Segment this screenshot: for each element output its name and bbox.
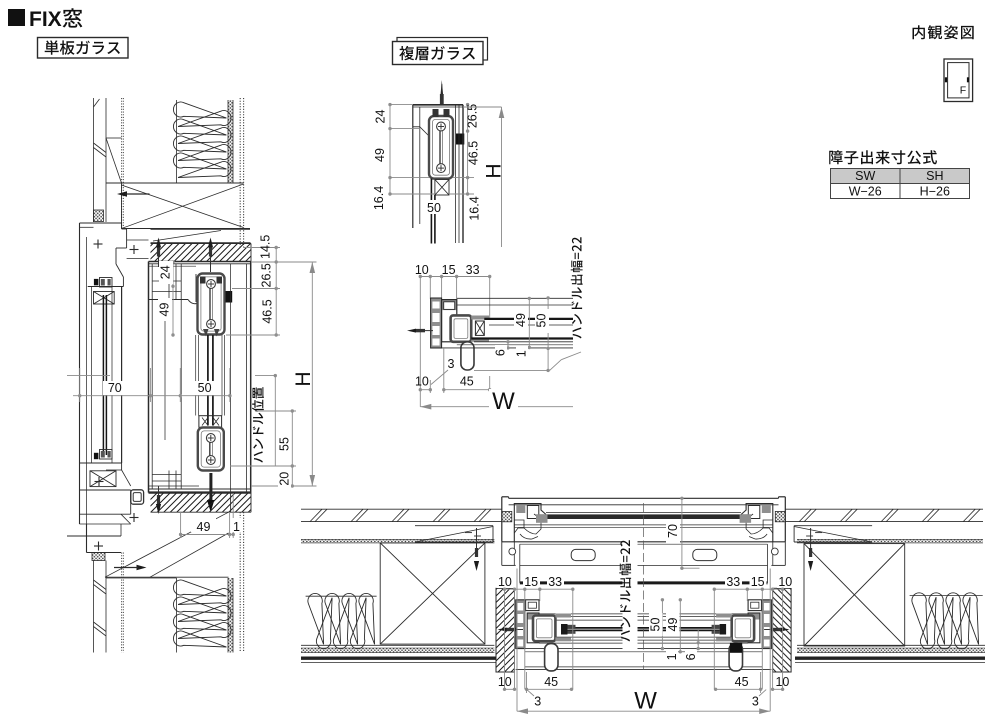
svg-text:49: 49 (197, 520, 211, 534)
svg-text:50: 50 (649, 618, 663, 632)
svg-text:14.5: 14.5 (259, 235, 273, 259)
svg-text:46.5: 46.5 (466, 141, 480, 165)
svg-text:50: 50 (535, 314, 549, 328)
svg-text:10: 10 (498, 575, 512, 589)
svg-text:SH: SH (926, 169, 943, 183)
svg-text:49: 49 (373, 148, 387, 162)
svg-text:6: 6 (494, 349, 508, 356)
svg-text:50: 50 (427, 201, 441, 215)
svg-text:15: 15 (442, 263, 456, 277)
svg-text:F: F (960, 85, 966, 97)
svg-text:26.5: 26.5 (260, 263, 274, 287)
svg-text:W: W (492, 388, 515, 415)
svg-text:10: 10 (498, 675, 512, 689)
svg-text:3: 3 (752, 695, 759, 709)
svg-text:24: 24 (159, 265, 173, 279)
svg-text:3: 3 (448, 357, 455, 371)
svg-text:H−26: H−26 (920, 185, 950, 199)
svg-text:46.5: 46.5 (261, 299, 275, 323)
svg-text:33: 33 (466, 263, 480, 277)
svg-text:49: 49 (158, 303, 172, 317)
svg-text:49: 49 (666, 618, 680, 632)
svg-text:FIX: FIX (29, 8, 62, 31)
svg-text:49: 49 (514, 313, 528, 327)
svg-text:SW: SW (855, 169, 875, 183)
svg-text:16.4: 16.4 (372, 186, 386, 210)
svg-text:1: 1 (515, 350, 529, 357)
svg-text:70: 70 (108, 381, 122, 395)
svg-text:70: 70 (666, 524, 680, 538)
svg-text:33: 33 (726, 575, 740, 589)
svg-text:1: 1 (665, 653, 679, 660)
svg-text:55: 55 (278, 437, 292, 451)
svg-text:10: 10 (415, 375, 429, 389)
svg-text:15: 15 (524, 575, 538, 589)
svg-text:10: 10 (778, 575, 792, 589)
svg-text:6: 6 (684, 653, 698, 660)
svg-text:H: H (483, 163, 506, 178)
svg-text:3: 3 (534, 695, 541, 709)
svg-text:1: 1 (233, 520, 240, 534)
svg-text:16.4: 16.4 (467, 196, 481, 220)
svg-text:10: 10 (775, 675, 789, 689)
svg-text:33: 33 (548, 575, 562, 589)
svg-text:W−26: W−26 (849, 185, 882, 199)
svg-text:45: 45 (544, 675, 558, 689)
svg-text:H: H (292, 371, 315, 386)
svg-text:15: 15 (751, 575, 765, 589)
svg-text:45: 45 (735, 675, 749, 689)
svg-text:10: 10 (415, 263, 429, 277)
svg-text:W: W (634, 688, 657, 715)
svg-text:20: 20 (278, 472, 292, 486)
svg-text:26.5: 26.5 (465, 104, 479, 128)
svg-text:45: 45 (460, 375, 474, 389)
svg-text:50: 50 (198, 381, 212, 395)
svg-text:24: 24 (374, 110, 388, 124)
